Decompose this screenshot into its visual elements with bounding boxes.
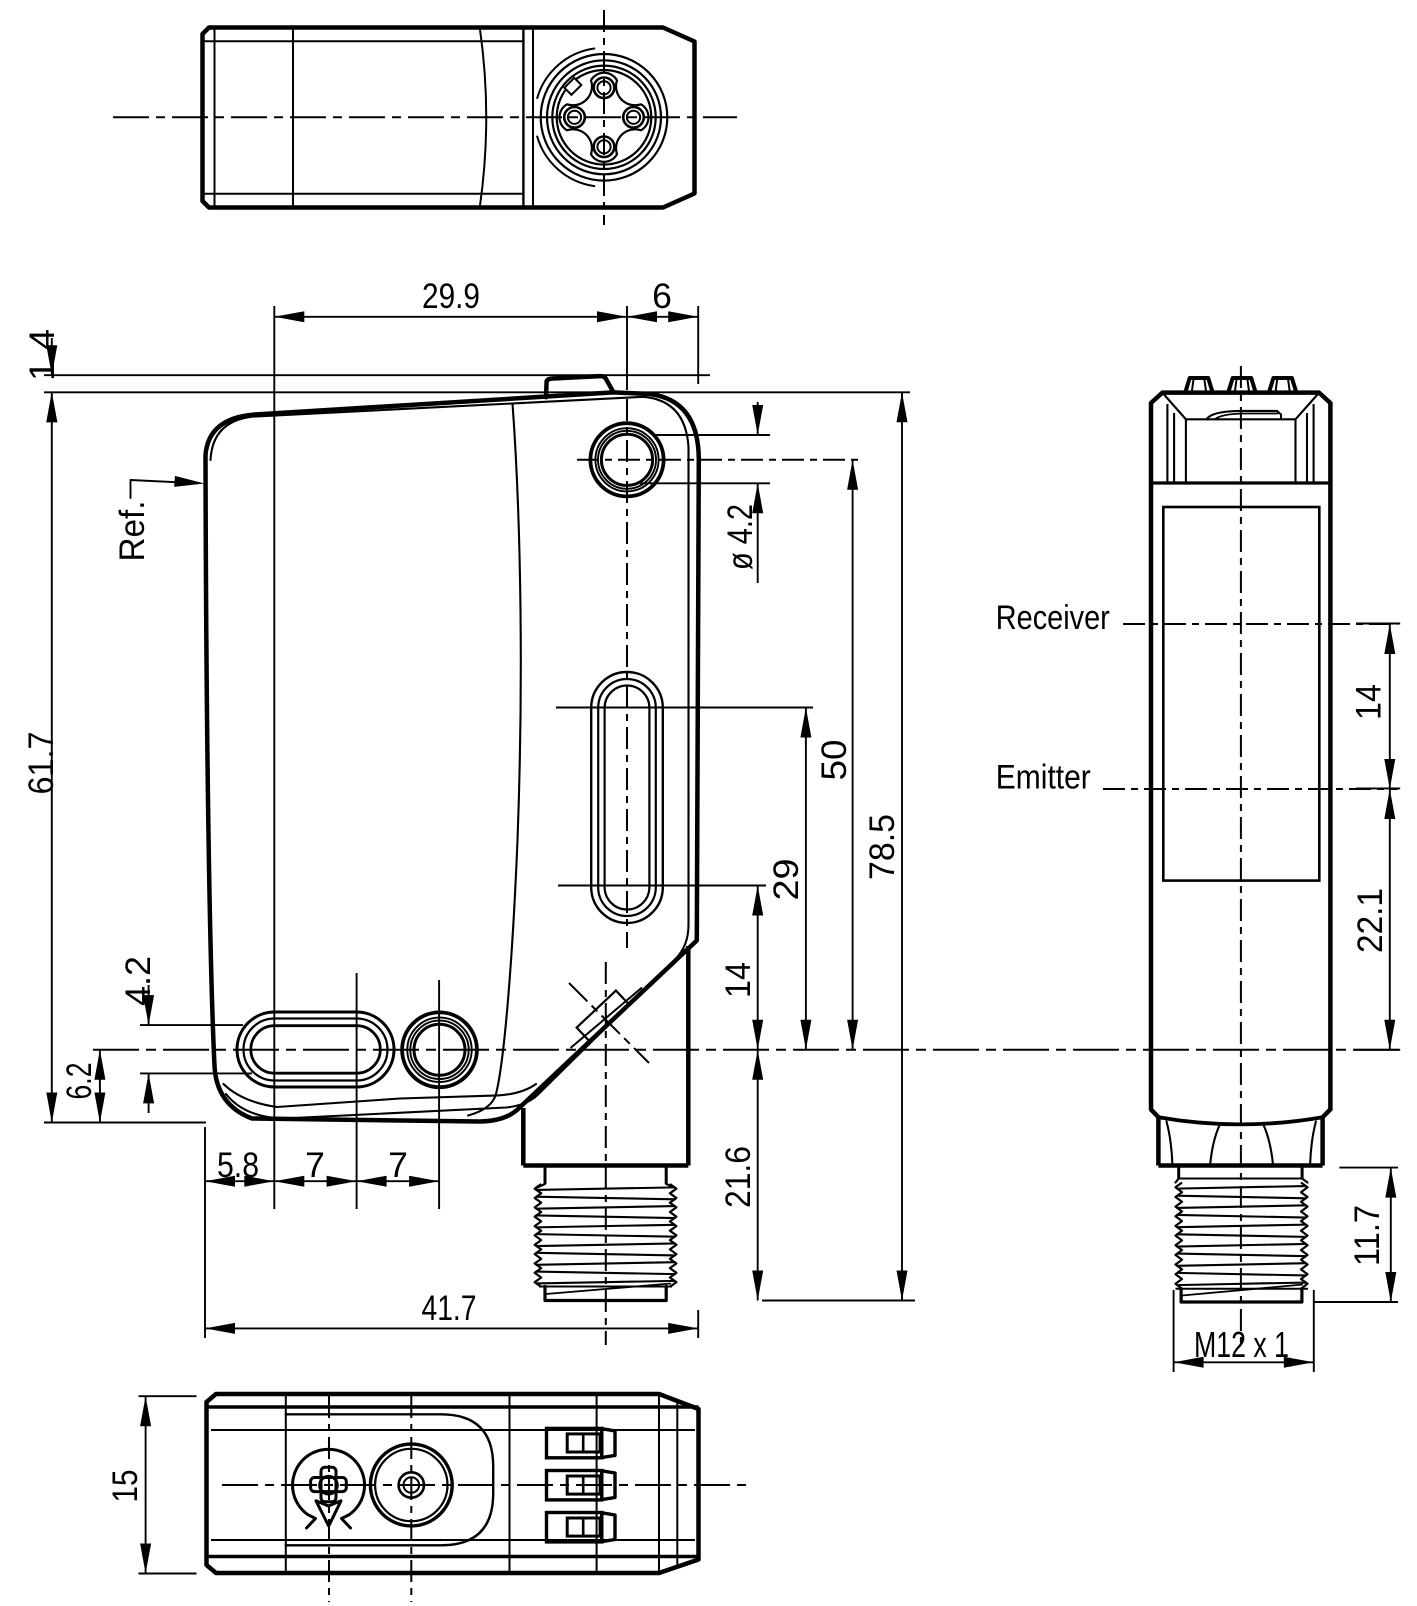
svg-text:M12 x 1: M12 x 1: [1194, 1324, 1289, 1365]
svg-text:29: 29: [766, 859, 806, 901]
svg-text:ø 4.2: ø 4.2: [720, 504, 760, 570]
svg-text:21.6: 21.6: [718, 1146, 758, 1208]
svg-text:29.9: 29.9: [422, 276, 480, 316]
svg-text:4.2: 4.2: [118, 956, 158, 1006]
svg-text:7: 7: [305, 1145, 325, 1185]
svg-text:22.1: 22.1: [1350, 888, 1390, 953]
svg-text:6: 6: [652, 276, 672, 316]
svg-text:15: 15: [105, 1470, 145, 1503]
svg-text:14: 14: [718, 962, 758, 998]
svg-text:5.8: 5.8: [217, 1145, 259, 1185]
svg-text:1.4: 1.4: [22, 329, 62, 381]
svg-text:14: 14: [1348, 684, 1388, 720]
svg-text:Ref.: Ref.: [112, 501, 152, 562]
svg-text:78.5: 78.5: [862, 814, 902, 880]
svg-text:61.7: 61.7: [21, 732, 61, 795]
svg-text:Receiver: Receiver: [996, 599, 1110, 637]
svg-text:Emitter: Emitter: [996, 758, 1091, 796]
svg-text:6.2: 6.2: [59, 1063, 99, 1100]
svg-text:7: 7: [388, 1145, 408, 1185]
svg-text:11.7: 11.7: [1347, 1205, 1387, 1266]
svg-text:50: 50: [814, 740, 854, 781]
svg-text:41.7: 41.7: [422, 1288, 477, 1328]
